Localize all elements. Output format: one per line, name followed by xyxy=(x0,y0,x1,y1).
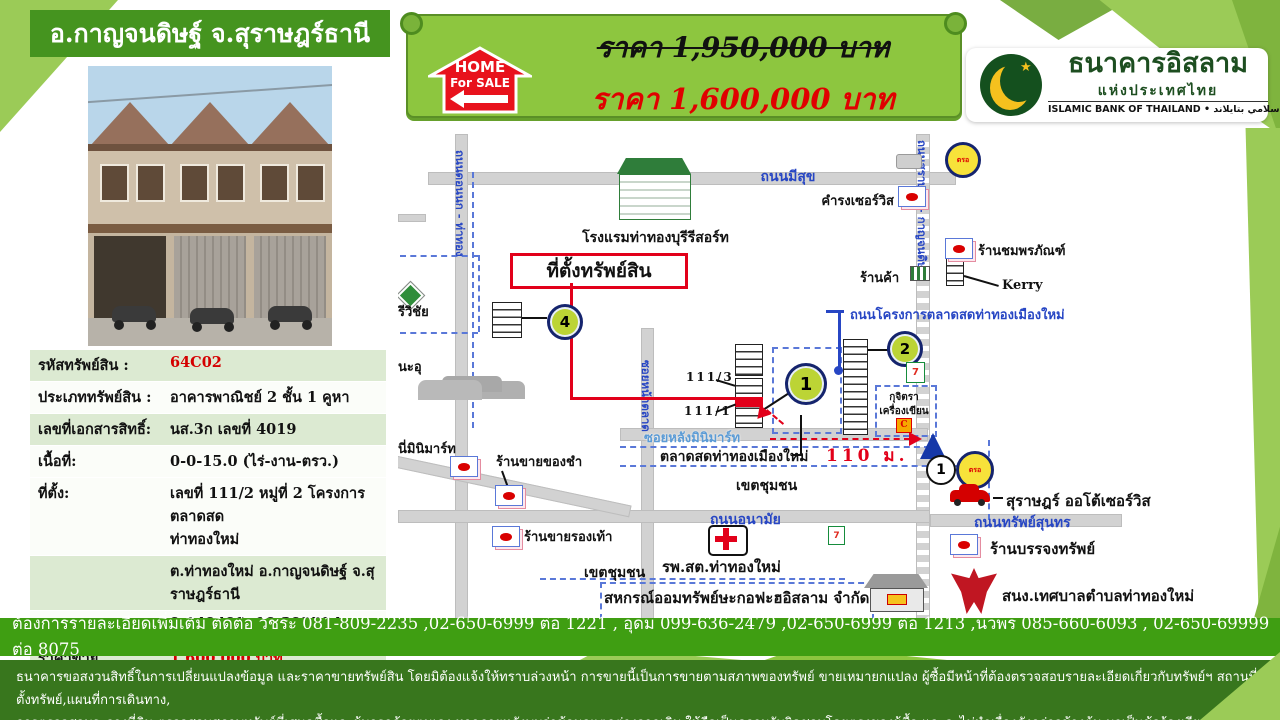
boundary-dash-3 xyxy=(400,332,478,334)
road-misuk xyxy=(428,172,956,185)
stationery-label-1: กุจิตรา xyxy=(880,390,928,405)
land-area: 0-0-15.0 (ไร่-งาน-ตรว.) xyxy=(166,446,386,477)
row-label: เลขที่เอกสารสิทธิ์: xyxy=(30,414,166,445)
seven-eleven-icon-2: 7 xyxy=(828,526,845,545)
window-2 xyxy=(136,164,165,202)
contact-text: ต้องการรายละเอียดเพิ่มเติม ติดต่อ วัชระ … xyxy=(12,611,1280,663)
window-5 xyxy=(260,164,289,202)
property-photo xyxy=(88,66,332,346)
shopfront-shutter-1 xyxy=(174,236,246,318)
shoe-shop-label: ร้านขายรองเท้า xyxy=(524,526,612,547)
address-line-2: ต.ท่าทองใหม่ อ.กาญจนดิษฐ์ จ.สุ ราษฎร์ธาน… xyxy=(166,556,386,610)
minimart-label: นี่มินิมาร์ท xyxy=(398,438,456,459)
row-label: เนื้อที่: xyxy=(30,446,166,477)
road-label-left: ถนนดอนนก - ท่าทอง xyxy=(450,150,468,257)
crescent-cut xyxy=(1000,60,1038,102)
property-type: อาคารพาณิชย์ 2 ชั้น 1 คูหา xyxy=(166,382,386,413)
van-icon xyxy=(896,154,922,169)
banjong-label: ร้านบรรจงทรัพย์ xyxy=(990,537,1095,561)
flyer-page: อ.กาญจนดิษฐ์ จ.สุราษฎร์ธานี HOME For SAL… xyxy=(0,0,1280,720)
location-title: อ.กาญจนดิษฐ์ จ.สุราษฎร์ธานี xyxy=(50,14,370,54)
community-zone-label-1: เขตชุมชน xyxy=(736,475,797,497)
motorbike-3-wheel-2 xyxy=(302,320,312,330)
motorbike-1-wheel-2 xyxy=(146,320,156,330)
badge-line2: For SALE xyxy=(450,76,510,90)
grocery-shop-icon xyxy=(495,485,523,506)
damrong-service-label: คำรงเซอร์วิส xyxy=(796,190,894,211)
riwichai-label: รีวิชัย xyxy=(398,301,429,322)
distance-label: 110 ม. xyxy=(826,442,909,469)
disclaimer-footer: ธนาคารขอสงวนสิทธิ์ในการเปลี่ยนแปลงข้อมูล… xyxy=(0,660,1280,720)
route-line-vertical xyxy=(570,283,573,399)
municipality-label: สนง.เทศบาลตำบลท่าทองใหม่ xyxy=(1002,584,1194,608)
road-label-sapsoonthorn: ถนนทรัพย์สุนทร xyxy=(974,512,1071,534)
pavilion-body-icon xyxy=(870,588,924,612)
grocery-label: ร้านขายของชำ xyxy=(496,451,582,472)
nau-label: นะอุ xyxy=(398,356,422,377)
star-icon: ★ xyxy=(1020,60,1032,75)
community-zone-label-2: เขตชุมชน xyxy=(584,562,645,584)
home-for-sale-badge: HOME For SALE xyxy=(428,46,532,114)
map-badge-1: 1 xyxy=(785,363,827,405)
pavilion-sign xyxy=(887,594,907,605)
road-stub xyxy=(398,214,426,222)
property-location-label: ที่ตั้งทรัพย์สิน xyxy=(546,256,651,286)
table-row: เนื้อที่: 0-0-15.0 (ไร่-งาน-ตรว.) xyxy=(30,446,386,478)
road-label-soi-behind: ซอยหลังมินิมาร์ท xyxy=(644,427,740,448)
disclaimer-line-2: การตรวจสอบระวางที่ดิน,ตรวจสอบสภาพทรัพย์ท… xyxy=(16,713,1264,720)
kerry-building xyxy=(946,258,964,286)
building-111-upper xyxy=(735,344,763,376)
hotel-building-icon xyxy=(619,174,691,220)
shop-awning-icon xyxy=(910,266,930,281)
road-label-misuk: ถนนมีสุข xyxy=(728,166,848,188)
mosque-icon xyxy=(418,380,482,400)
house-number-111-1: 111/1 xyxy=(684,404,732,418)
minimart-shop-icon xyxy=(450,456,478,477)
property-code: 64C02 xyxy=(166,350,386,381)
inspection-badge-top: ตรอ xyxy=(945,142,981,178)
banner-curl-left xyxy=(400,12,423,35)
route-line-horizontal xyxy=(570,397,737,400)
table-row: รหัสทรัพย์สิน : 64C02 xyxy=(30,350,386,382)
motorbike-2-wheel xyxy=(192,322,202,332)
location-map: ถนนมีสุข ถนนดอนนก - ท่าทอง ถนนสุราษฎร์ -… xyxy=(398,128,1240,620)
motorbike-2-wheel-2 xyxy=(224,322,234,332)
car-icon xyxy=(950,490,990,502)
chomporn-label: ร้านชมพรภัณฑ์ xyxy=(978,240,1066,261)
deed-number: นส.3ก เลขที่ 4019 xyxy=(166,414,386,445)
disclaimer-line-1: ธนาคารขอสงวนสิทธิ์ในการเปลี่ยนแปลงข้อมูล… xyxy=(16,667,1264,713)
row-label: ประเภททรัพย์สิน : xyxy=(30,382,166,413)
road-label-project: ถนนโครงการตลาดสดท่าทองเมืองใหม่ xyxy=(850,304,1065,325)
damrong-shop-icon xyxy=(898,186,926,207)
power-line xyxy=(88,82,332,103)
project-road-callout-h xyxy=(826,310,844,313)
market-label: ตลาดสดท่าทองเมืองใหม่ xyxy=(660,446,808,468)
kerry-label: Kerry xyxy=(1002,278,1043,293)
auto-service-label: สุราษฎร์ ออโต้เซอร์วิส xyxy=(1006,489,1151,513)
bank-name-thai: ธนาคารอิสลาม xyxy=(1052,50,1264,78)
row-label xyxy=(30,556,166,610)
roof-gable-3 xyxy=(250,102,330,146)
pavilion-roof-icon xyxy=(864,574,928,588)
old-price: ราคา 1,950,000 บาท xyxy=(545,26,941,70)
road-anamai xyxy=(398,510,930,523)
kerry-connector xyxy=(964,275,999,287)
project-road-callout-dot xyxy=(834,366,843,375)
hotel-label: โรงแรมท่าทองบุรีรีสอร์ท xyxy=(558,227,753,249)
hotel-roof-icon xyxy=(617,158,691,174)
motorbike-1-wheel xyxy=(114,320,124,330)
window-6 xyxy=(296,164,325,202)
window-1 xyxy=(100,164,129,202)
window-4 xyxy=(216,164,245,202)
window-3 xyxy=(180,164,209,202)
table-row: ประเภททรัพย์สิน : อาคารพาณิชย์ 2 ชั้น 1 … xyxy=(30,382,386,414)
hospital-cross-icon xyxy=(708,525,748,556)
auto-service-connector xyxy=(993,497,1003,499)
banner-curl-right xyxy=(944,12,967,35)
badge-line1: HOME xyxy=(455,58,505,76)
route-number-badge: 1 xyxy=(926,455,956,485)
new-price: ราคา 1,600,000 บาท xyxy=(545,76,941,122)
bank-name-thai2: แห่งประเทศไทย xyxy=(1052,80,1264,102)
road-label-center-soi: ซอยหน้าตลาด xyxy=(636,360,654,432)
table-row: เลขที่เอกสารสิทธิ์: นส.3ก เลขที่ 4019 xyxy=(30,414,386,446)
badge4-connector xyxy=(522,317,547,319)
property-location-box: ที่ตั้งทรัพย์สิน xyxy=(510,253,688,289)
table-row: ที่ตั้ง: เลขที่ 111/2 หมู่ที่ 2 โครงการต… xyxy=(30,478,386,556)
location-header: อ.กาญจนดิษฐ์ จ.สุราษฎร์ธานี xyxy=(30,10,390,57)
chomporn-shop-icon xyxy=(945,238,973,259)
bank-crescent-icon: ★ xyxy=(980,54,1042,116)
roof-gable-2 xyxy=(170,102,250,146)
banjong-shop-icon xyxy=(950,534,978,555)
c-mart-logo-icon: C xyxy=(896,418,912,433)
contact-bar: ต้องการรายละเอียดเพิ่มเติม ติดต่อ วัชระ … xyxy=(0,618,1280,656)
bank-name-english: ISLAMIC BANK OF THAILAND • البنك الإسلام… xyxy=(1048,101,1268,115)
map-badge-4: 4 xyxy=(547,304,583,340)
address-line-1: เลขที่ 111/2 หมู่ที่ 2 โครงการตลาดสด ท่า… xyxy=(166,478,386,555)
table-row: ต.ท่าทองใหม่ อ.กาญจนดิษฐ์ จ.สุ ราษฎร์ธาน… xyxy=(30,556,386,611)
boundary-dash-2 xyxy=(478,255,480,332)
building-4 xyxy=(492,302,522,338)
roof-gable-1 xyxy=(90,102,170,146)
row-label: รหัสทรัพย์สิน : xyxy=(30,350,166,381)
shoe-shop-icon xyxy=(492,526,520,547)
building-2 xyxy=(843,339,868,435)
shop-label: ร้านค้า xyxy=(860,267,899,288)
badge2-connector xyxy=(868,349,888,351)
seven-eleven-icon-1: 7 xyxy=(906,362,925,383)
row-label: ที่ตั้ง: xyxy=(30,478,166,555)
project-road-callout-v xyxy=(838,312,841,368)
hospital-label: รพ.สต.ท่าทองใหม่ xyxy=(662,555,781,579)
motorbike-3-wheel xyxy=(270,320,280,330)
stationery-label-2: เครื่องเขียน xyxy=(876,404,932,419)
roof-fascia xyxy=(88,144,332,151)
coop-label: สหกรณ์ออมทรัพย์ษะกอฟะฮอิสลาม จำกัด xyxy=(604,586,869,610)
garuda-emblem-icon xyxy=(951,568,997,614)
red-dash-distance-line xyxy=(770,438,910,440)
floor-beam xyxy=(88,224,332,233)
